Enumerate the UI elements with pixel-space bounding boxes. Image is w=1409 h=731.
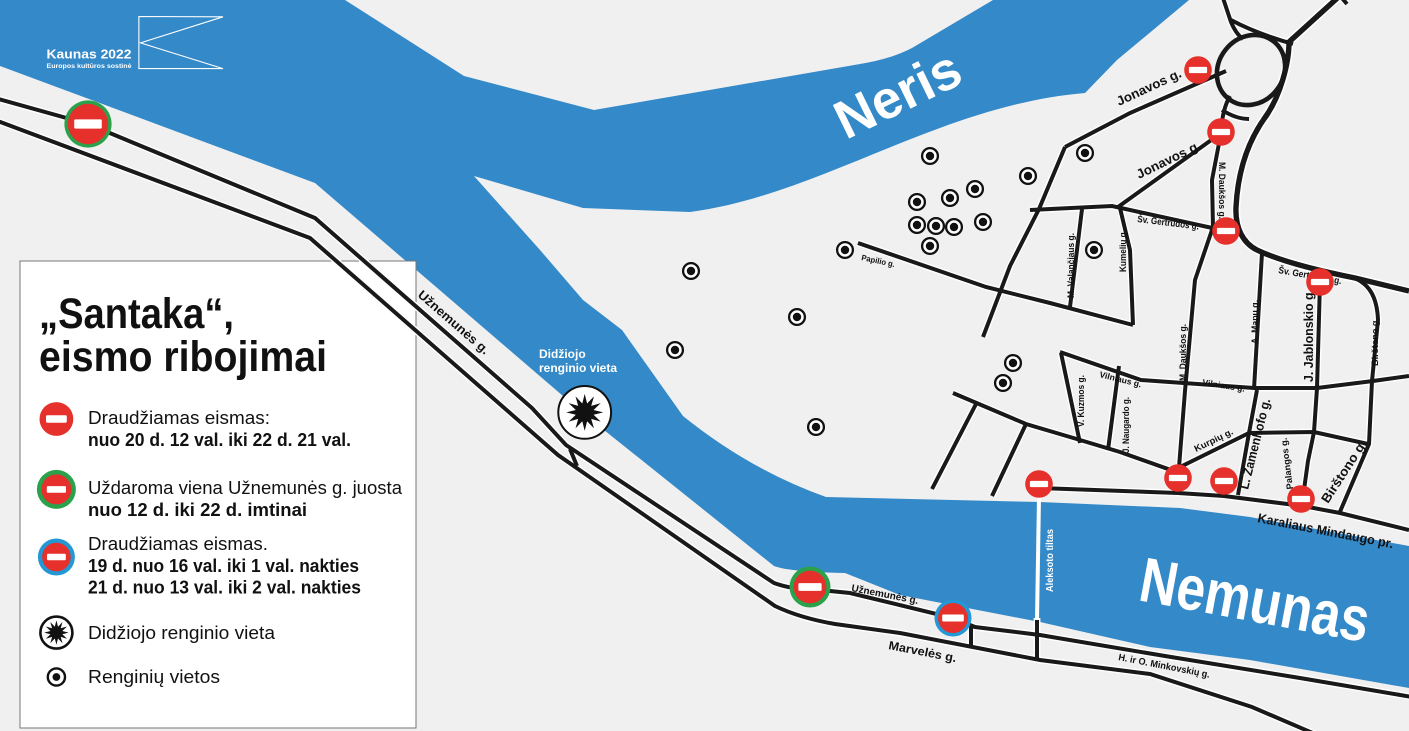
svg-text:Renginių vietos: Renginių vietos bbox=[88, 666, 220, 687]
svg-text:Aleksoto tiltas: Aleksoto tiltas bbox=[1045, 529, 1056, 592]
svg-text:A. Mapu g.: A. Mapu g. bbox=[1250, 300, 1260, 344]
svg-text:nuo 12 d. iki 22 d. imtinai: nuo 12 d. iki 22 d. imtinai bbox=[88, 499, 307, 520]
svg-text:eismo ribojimai: eismo ribojimai bbox=[39, 333, 327, 381]
svg-text:M. Daukšos g.: M. Daukšos g. bbox=[1216, 162, 1227, 219]
svg-text:Birštono g.: Birštono g. bbox=[1370, 318, 1380, 366]
svg-text:Uždaroma viena Užnemunės g. ju: Uždaroma viena Užnemunės g. juosta bbox=[88, 477, 403, 498]
svg-text:Kumelių g.: Kumelių g. bbox=[1118, 230, 1128, 272]
svg-text:Didžiojo renginio vieta: Didžiojo renginio vieta bbox=[88, 622, 276, 643]
svg-text:21 d. nuo 13 val. iki 2 val. n: 21 d. nuo 13 val. iki 2 val. nakties bbox=[88, 577, 361, 598]
svg-text:nuo 20 d. 12 val. iki 22 d. 21: nuo 20 d. 12 val. iki 22 d. 21 val. bbox=[88, 429, 351, 450]
svg-text:„Santaka“,: „Santaka“, bbox=[39, 290, 234, 338]
svg-text:J. Jablonskio g.: J. Jablonskio g. bbox=[1301, 289, 1316, 382]
svg-text:Draudžiamas eismas.: Draudžiamas eismas. bbox=[88, 533, 268, 554]
svg-text:Kaunas 2022: Kaunas 2022 bbox=[47, 47, 132, 62]
svg-text:M. Daukšos g.: M. Daukšos g. bbox=[1178, 324, 1188, 381]
svg-text:renginio vieta: renginio vieta bbox=[539, 361, 617, 375]
svg-text:Didžiojo: Didžiojo bbox=[539, 347, 586, 361]
svg-text:M. Valančiaus g.: M. Valančiaus g. bbox=[1066, 233, 1076, 298]
svg-text:J. Naugardo g.: J. Naugardo g. bbox=[1121, 397, 1131, 453]
svg-text:Europos kultūros sostinė: Europos kultūros sostinė bbox=[47, 63, 132, 70]
svg-text:V. Kuzmos g.: V. Kuzmos g. bbox=[1076, 375, 1086, 427]
svg-text:Draudžiamas eismas:: Draudžiamas eismas: bbox=[88, 407, 270, 428]
svg-text:19 d. nuo 16 val. iki 1 val. n: 19 d. nuo 16 val. iki 1 val. nakties bbox=[88, 555, 359, 576]
